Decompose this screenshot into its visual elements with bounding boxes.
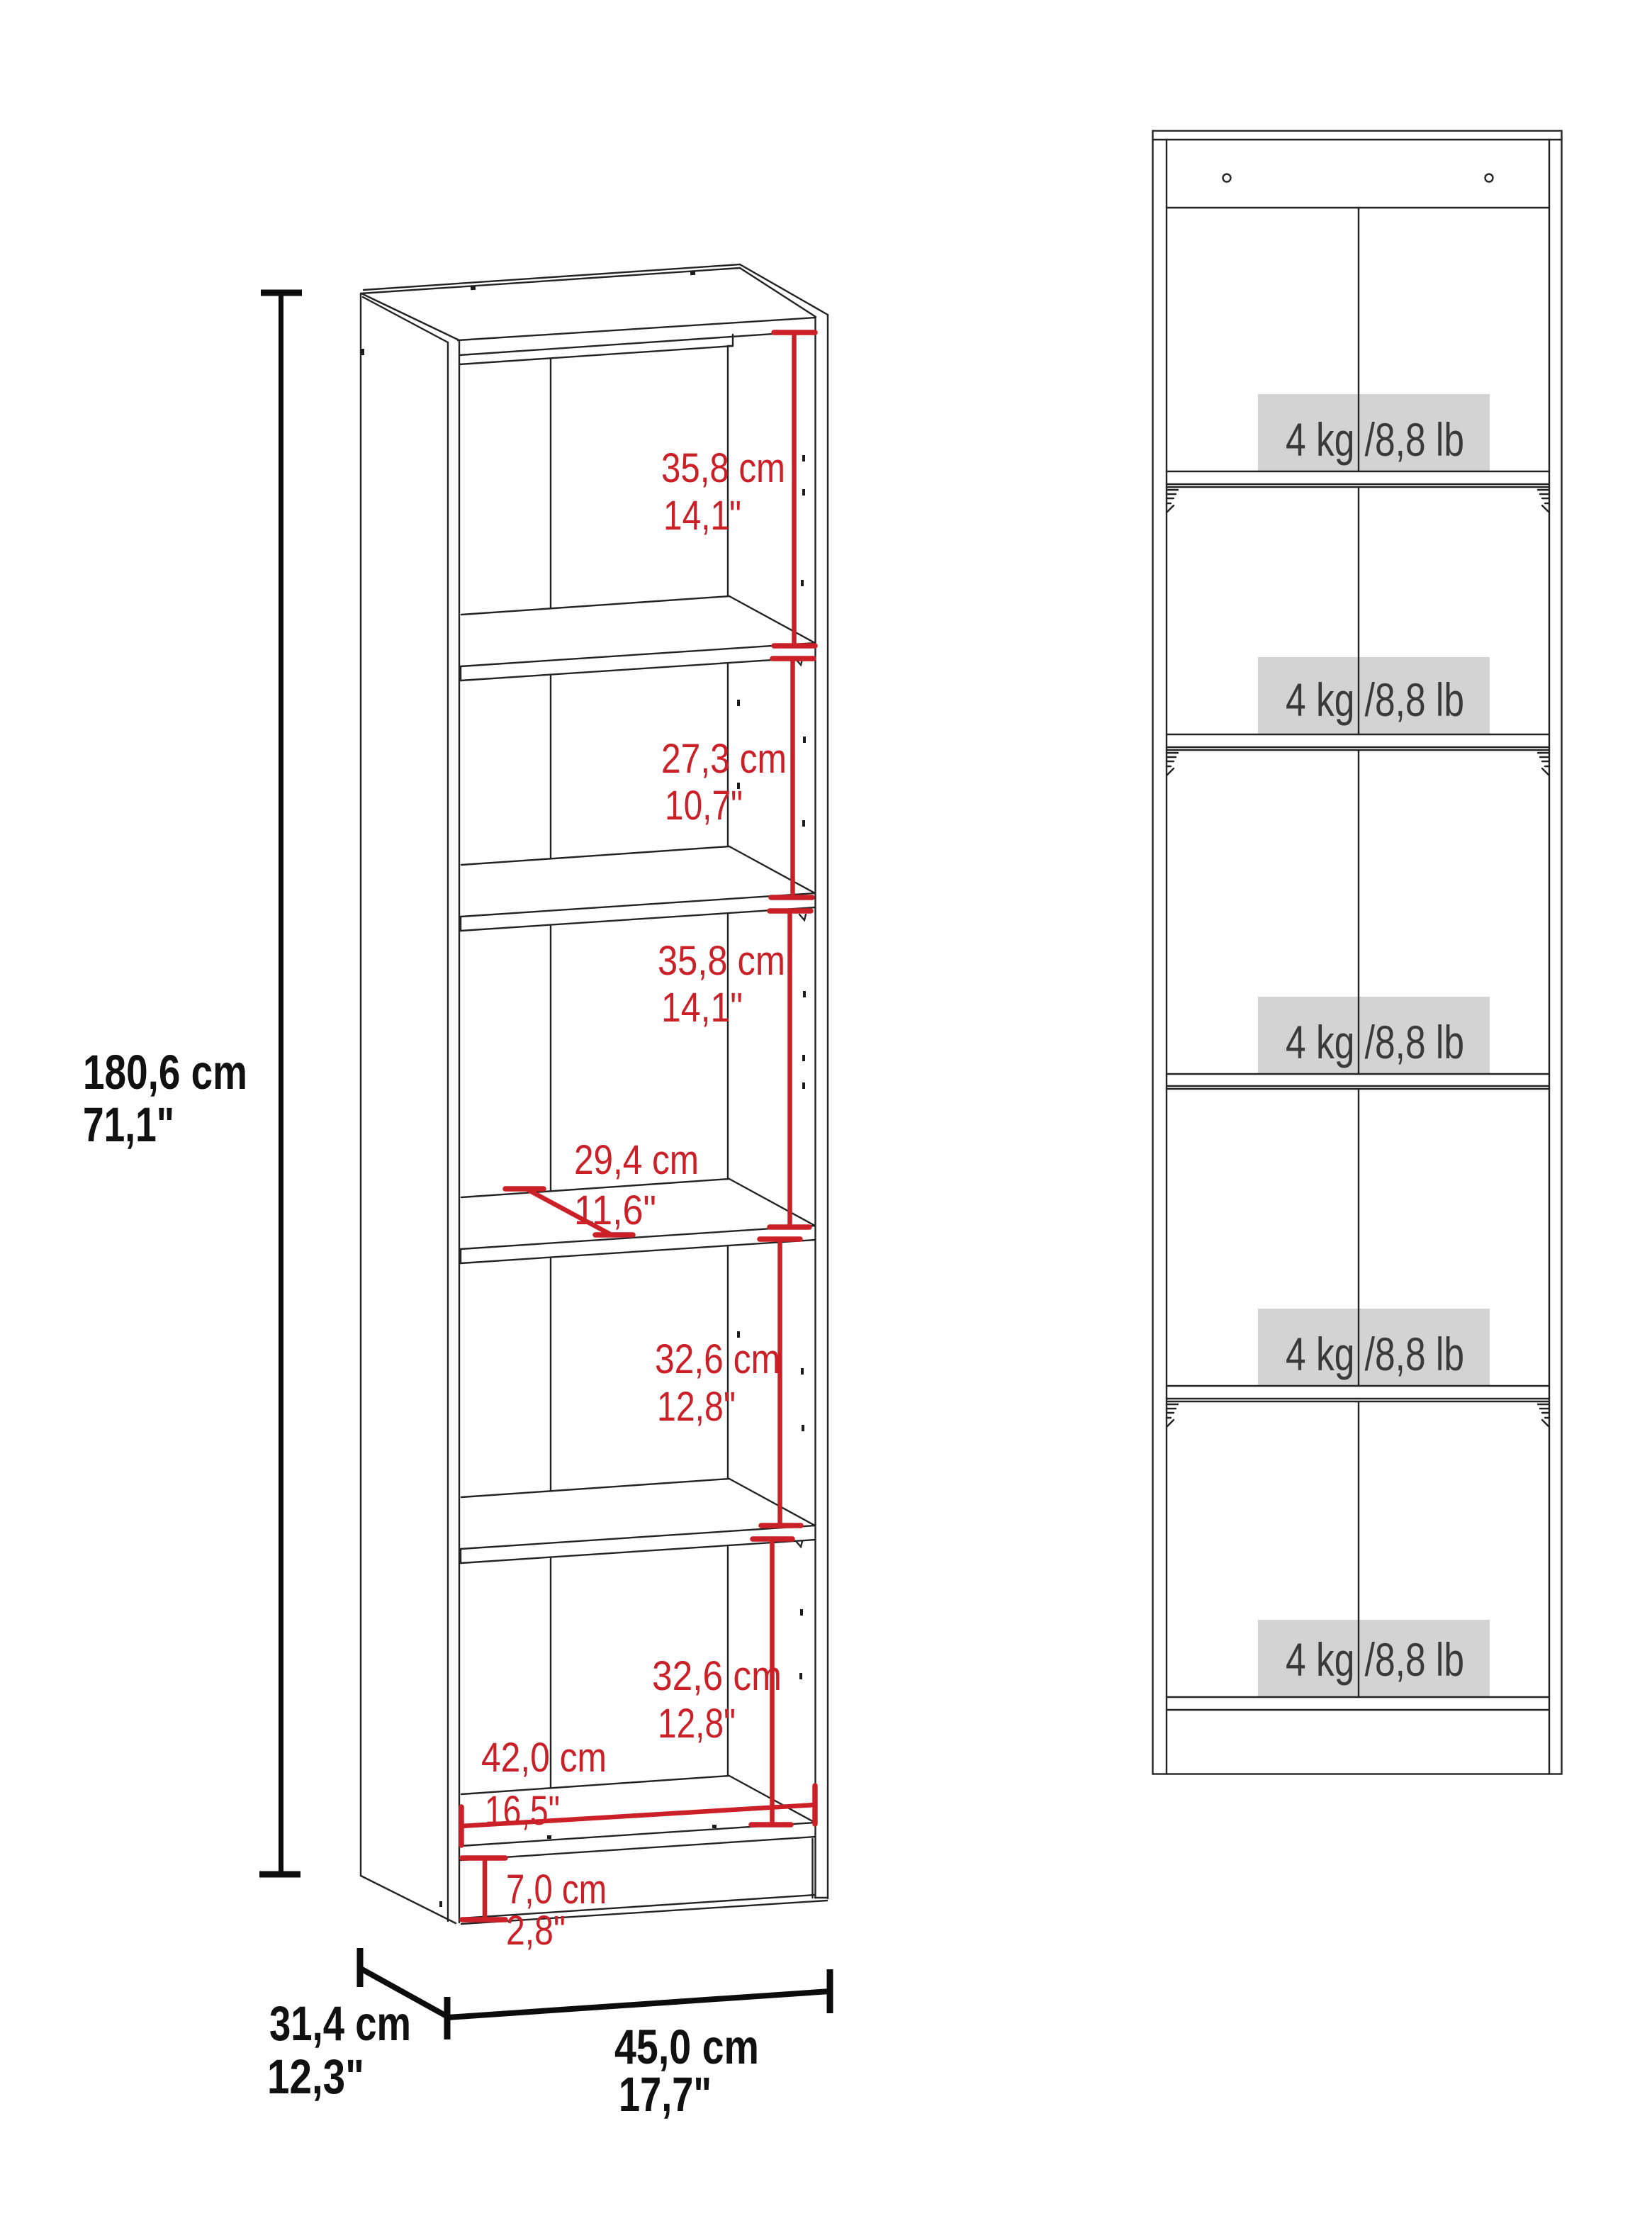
svg-text:2,8": 2,8" — [506, 1908, 566, 1954]
svg-text:31,4 cm: 31,4 cm — [269, 1996, 411, 2051]
svg-text:27,3 cm: 27,3 cm — [661, 736, 787, 782]
svg-text:11,6": 11,6" — [574, 1187, 656, 1233]
svg-text:4 kg /8,8 lb: 4 kg /8,8 lb — [1286, 1016, 1464, 1068]
svg-text:4 kg /8,8 lb: 4 kg /8,8 lb — [1286, 1633, 1464, 1686]
svg-text:14,1": 14,1" — [663, 493, 741, 539]
svg-text:32,6 cm: 32,6 cm — [655, 1336, 780, 1382]
svg-text:14,1": 14,1" — [661, 985, 743, 1031]
svg-text:12,3": 12,3" — [267, 2049, 364, 2104]
svg-text:42,0 cm: 42,0 cm — [481, 1735, 607, 1781]
svg-text:17,7": 17,7" — [619, 2067, 712, 2122]
svg-text:12,8": 12,8" — [657, 1384, 736, 1430]
svg-text:4 kg /8,8 lb: 4 kg /8,8 lb — [1286, 673, 1464, 726]
svg-text:16,5": 16,5" — [485, 1788, 560, 1834]
svg-text:4 kg /8,8 lb: 4 kg /8,8 lb — [1286, 413, 1464, 466]
svg-text:45,0 cm: 45,0 cm — [614, 2020, 759, 2074]
svg-text:10,7": 10,7" — [665, 783, 743, 829]
svg-text:29,4 cm: 29,4 cm — [574, 1137, 699, 1183]
svg-text:7,0 cm: 7,0 cm — [506, 1867, 607, 1913]
svg-text:32,6 cm: 32,6 cm — [652, 1653, 782, 1699]
svg-text:12,8": 12,8" — [658, 1701, 736, 1747]
svg-text:4 kg /8,8 lb: 4 kg /8,8 lb — [1286, 1328, 1464, 1380]
svg-text:35,8 cm: 35,8 cm — [661, 445, 785, 491]
svg-text:71,1": 71,1" — [83, 1097, 174, 1152]
svg-text:35,8 cm: 35,8 cm — [658, 938, 785, 984]
svg-text:180,6 cm: 180,6 cm — [83, 1045, 247, 1099]
